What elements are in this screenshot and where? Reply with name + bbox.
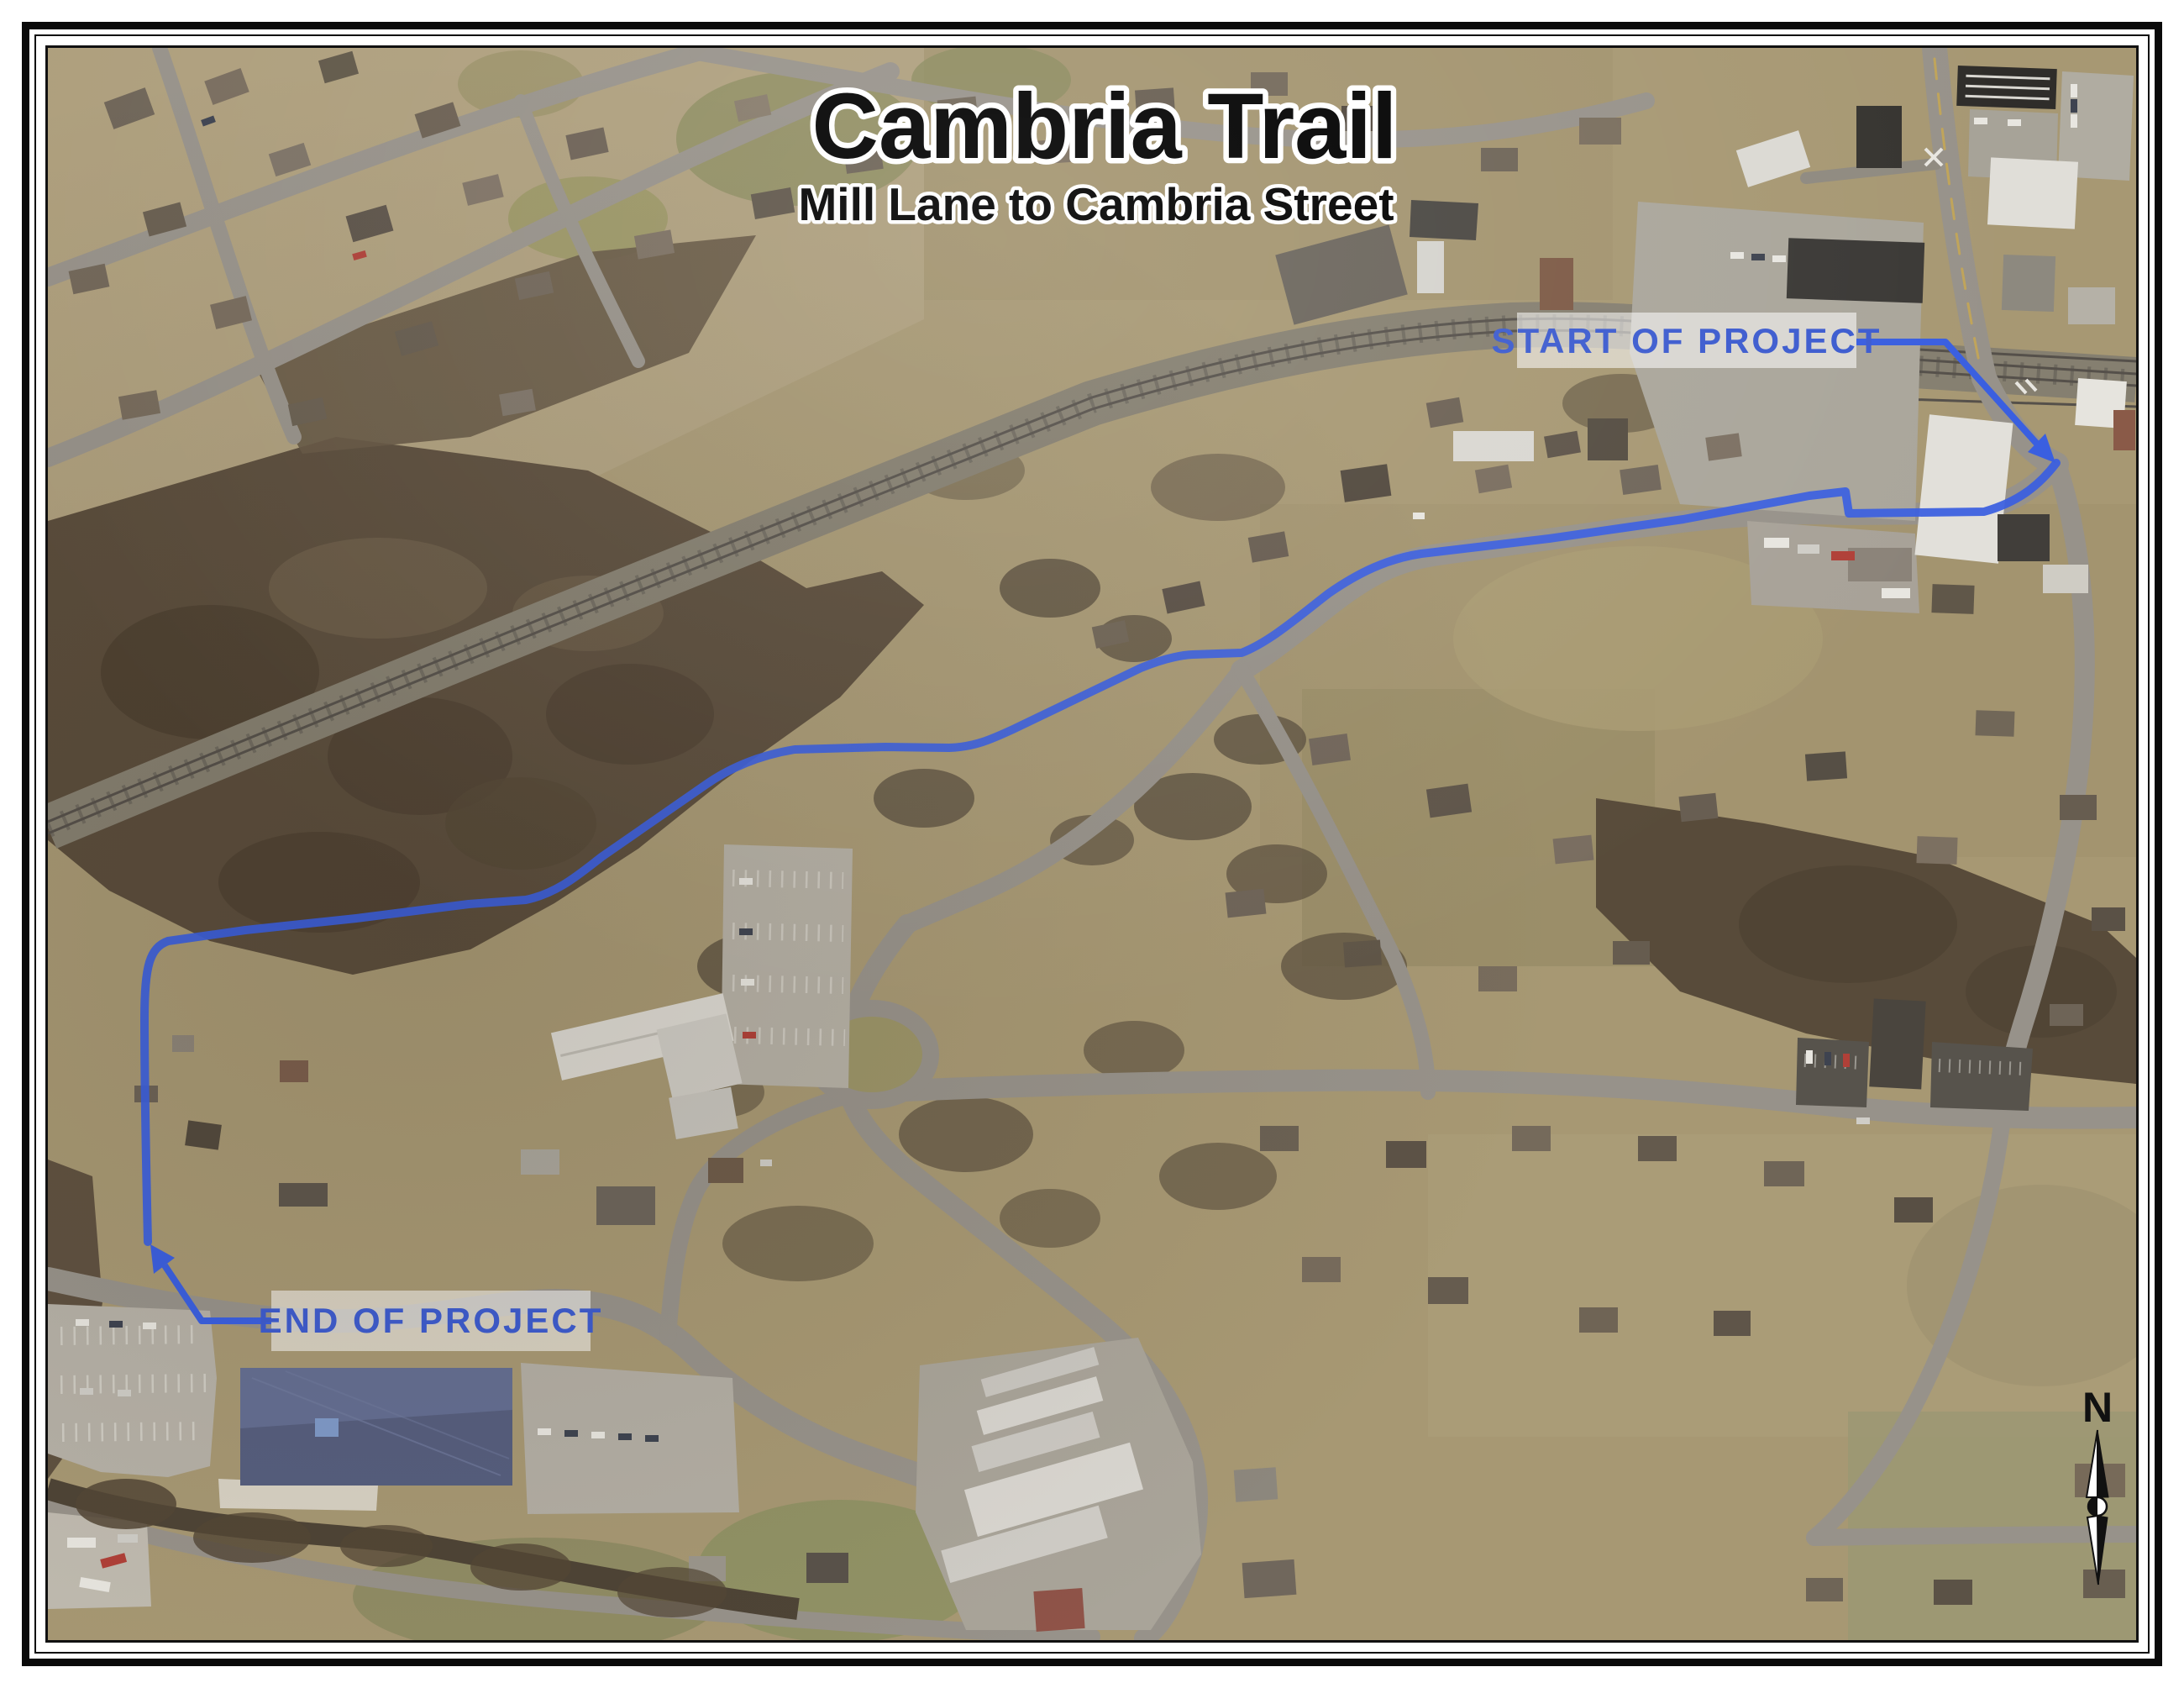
photo-vignette [48,48,2136,1640]
map-sheet: { "sheet": { "title": "Cambria Trail", "… [0,0,2184,1688]
map-frame: START OF PROJECT END OF PROJECT Cambria … [45,45,2139,1643]
aerial-map-canvas: START OF PROJECT END OF PROJECT Cambria … [48,48,2136,1640]
